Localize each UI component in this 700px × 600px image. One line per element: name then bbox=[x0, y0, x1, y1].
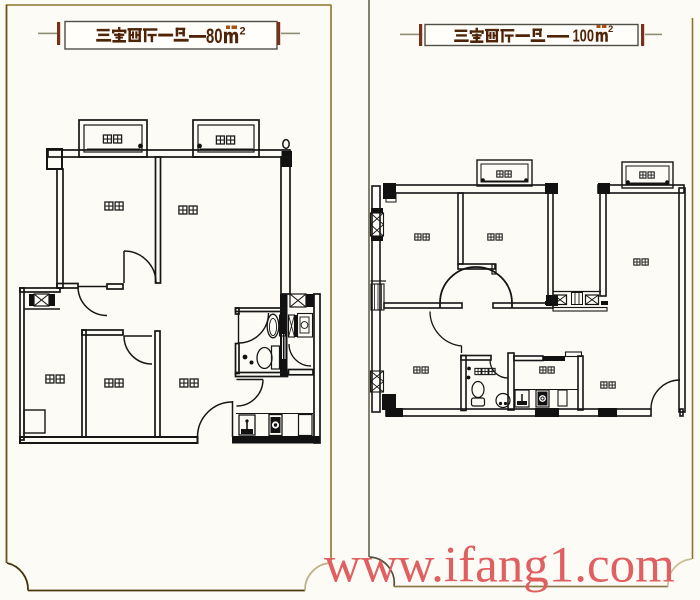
svg-text:80: 80 bbox=[206, 25, 223, 48]
svg-text:100: 100 bbox=[573, 25, 595, 45]
svg-text:m: m bbox=[595, 25, 609, 45]
svg-text:m: m bbox=[223, 26, 239, 48]
svg-text:www.ifang1.com: www.ifang1.com bbox=[324, 538, 675, 594]
svg-text:2: 2 bbox=[608, 24, 613, 35]
svg-text:2: 2 bbox=[240, 26, 246, 38]
